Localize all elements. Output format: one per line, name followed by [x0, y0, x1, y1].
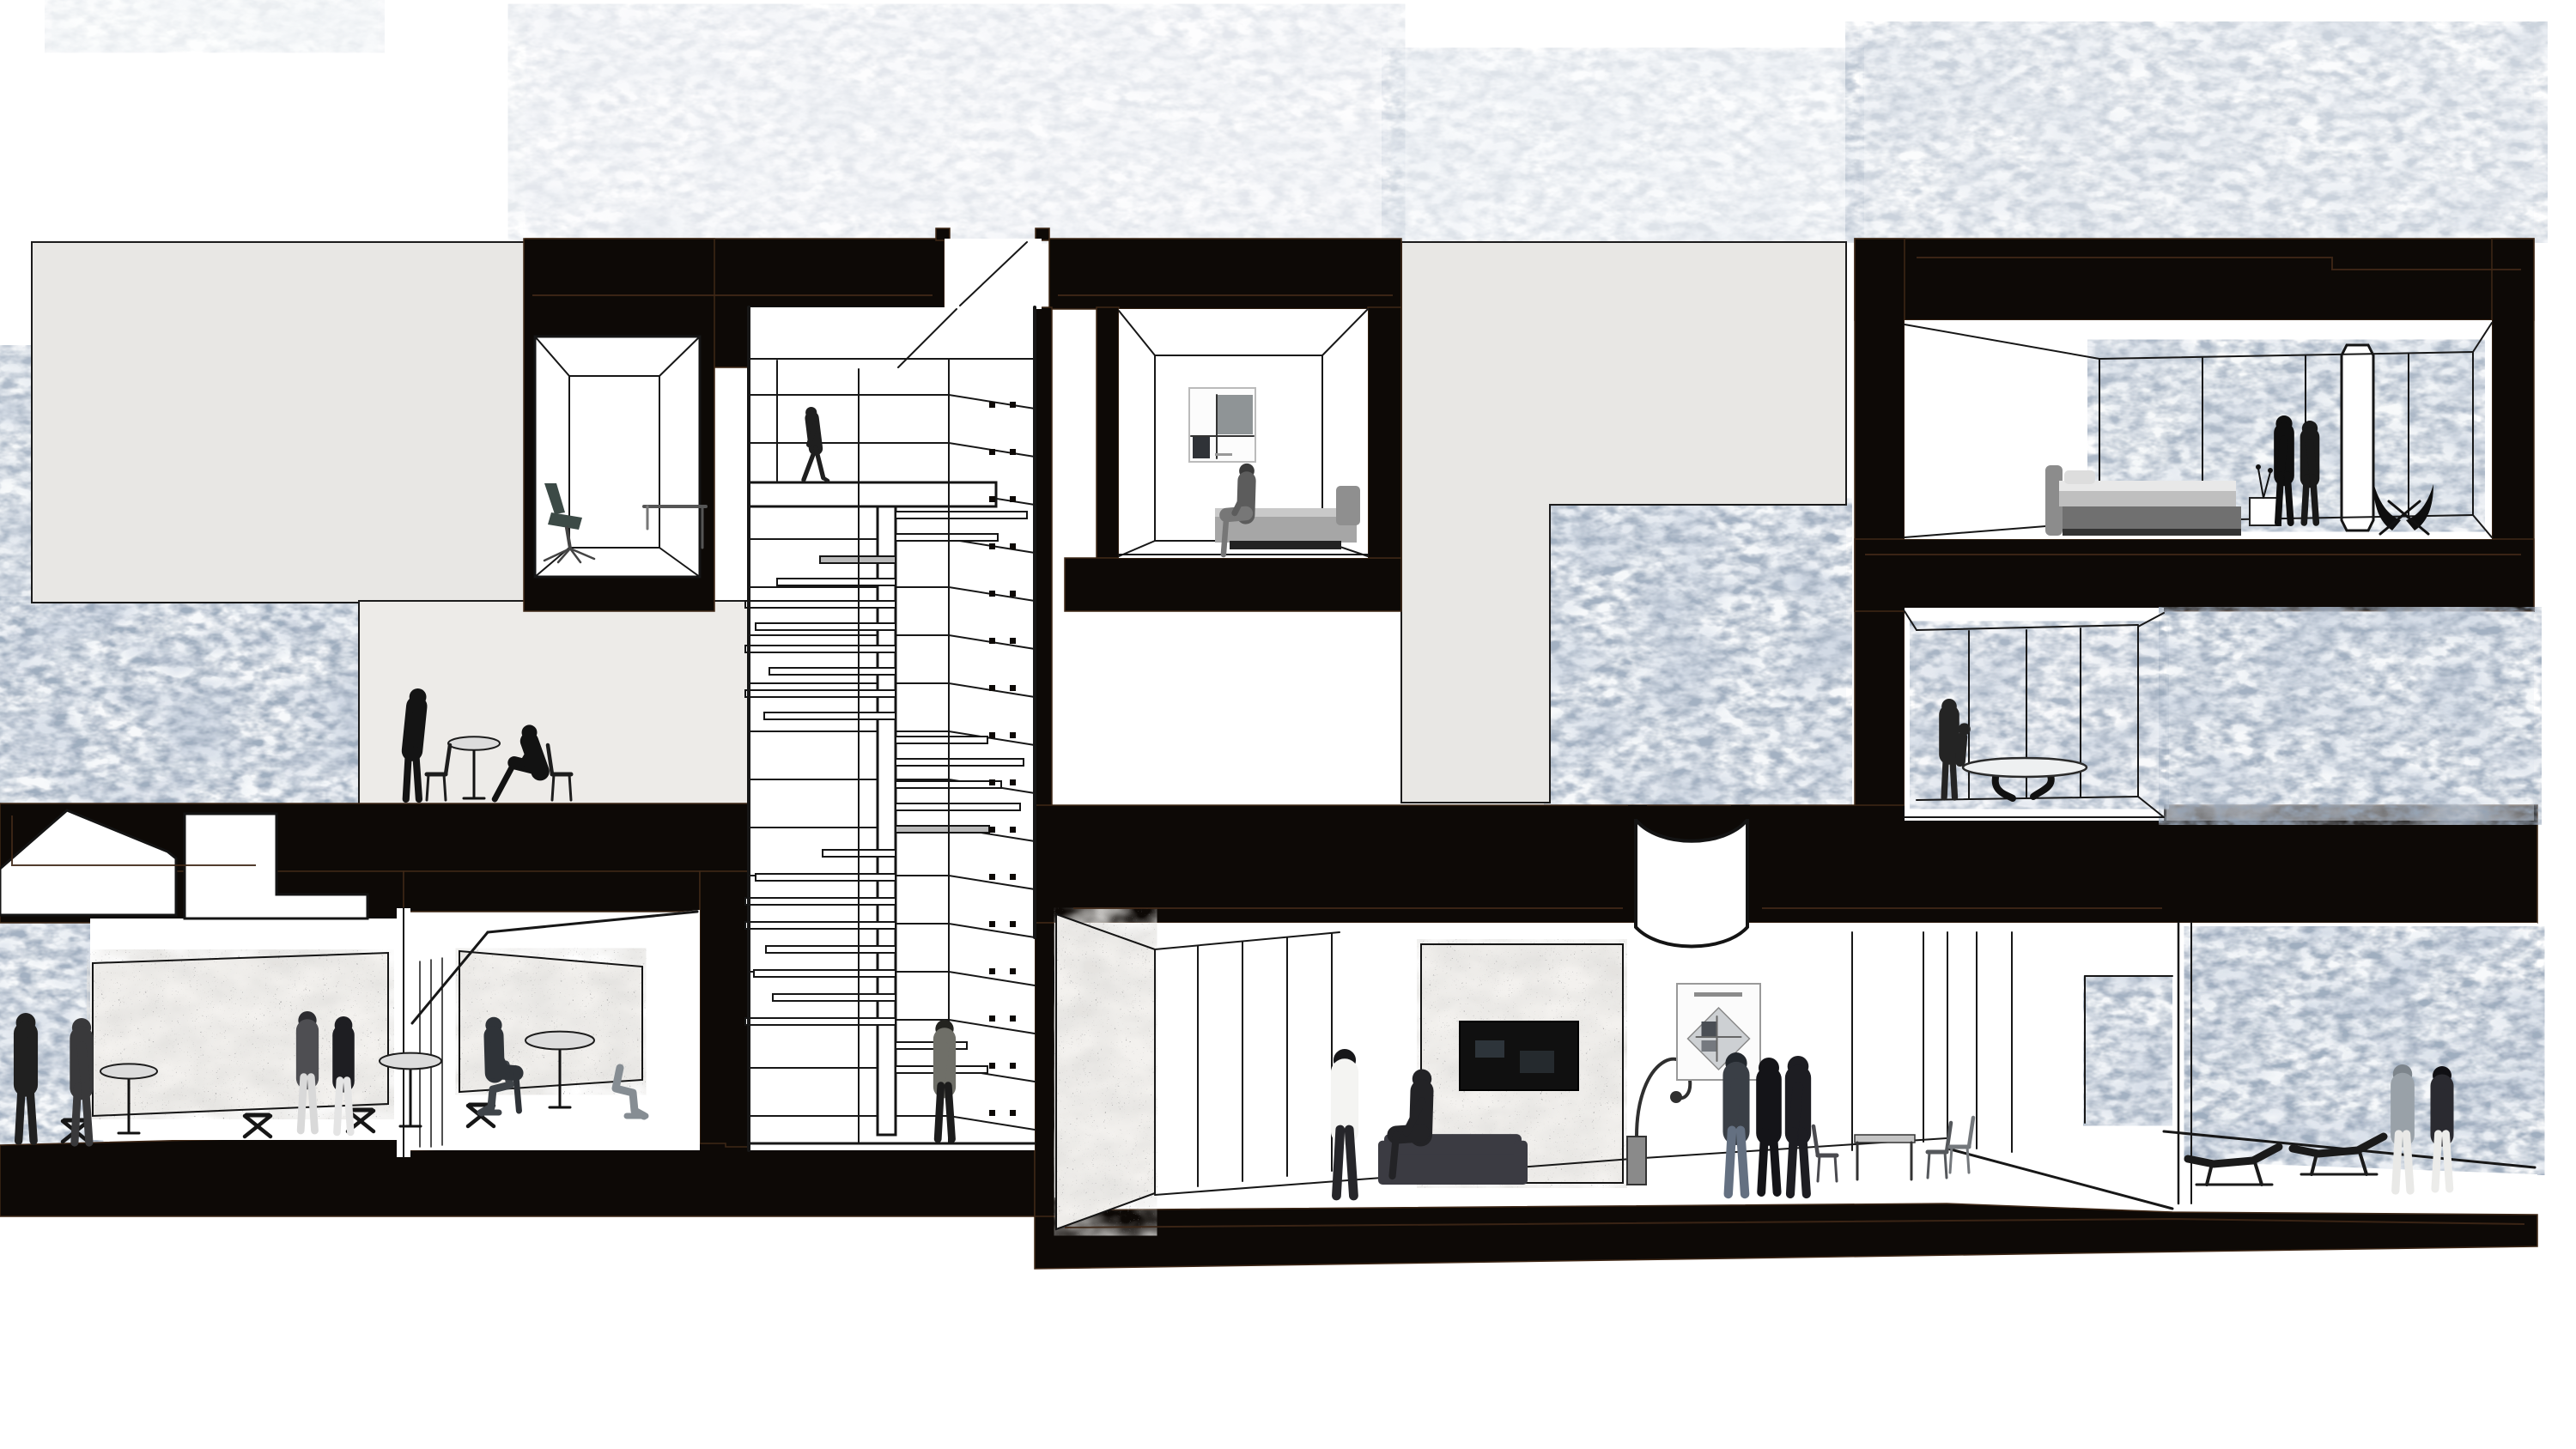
line: [1818, 1155, 1820, 1181]
line: [1950, 1147, 1952, 1173]
structure-slab: [1855, 239, 2534, 320]
stair-tread: [756, 874, 896, 881]
structure-slab: [1065, 558, 1401, 611]
stair-tread: [766, 946, 896, 953]
painting-caption: [1215, 453, 1232, 456]
structure-slab: [1097, 307, 1119, 558]
line: [940, 1046, 945, 1085]
dining-top: [1855, 1135, 1915, 1143]
line: [406, 749, 409, 799]
line: [1790, 1132, 1794, 1194]
line: [552, 774, 554, 800]
facade-dot: [989, 591, 995, 597]
facade-dot: [1010, 543, 1016, 549]
line: [2278, 475, 2281, 523]
line: [1224, 515, 1227, 555]
facade-dot: [989, 496, 995, 502]
line: [444, 774, 446, 800]
lamp-base: [1627, 1137, 1646, 1185]
structure-slab: [1855, 539, 2534, 611]
bed-shadow: [2063, 529, 2241, 536]
line: [2396, 1134, 2399, 1191]
tree-texture: [526, 9, 1388, 239]
stair-tread: [773, 994, 896, 1001]
facade-dot: [1010, 449, 1016, 455]
stair-tread: [745, 922, 896, 929]
stair-tread: [745, 898, 896, 905]
bed-backrest: [1336, 486, 1360, 525]
facade-dot: [1010, 827, 1016, 833]
structure-slab: [936, 228, 950, 240]
line: [1741, 1131, 1745, 1194]
line: [1960, 737, 1962, 761]
facade-dot: [1010, 638, 1016, 644]
poster-caption: [1694, 992, 1742, 997]
line: [427, 774, 428, 800]
facade-dot: [989, 543, 995, 549]
facade-dot: [989, 449, 995, 455]
pillow: [2064, 470, 2095, 484]
stair-tread: [777, 579, 896, 585]
tree-texture: [2085, 979, 2171, 1123]
painting-gray-square: [1217, 395, 1253, 434]
column-tab: [1731, 805, 1750, 819]
facade-dot: [989, 638, 995, 644]
line: [823, 478, 828, 481]
facade-dot: [989, 1110, 995, 1116]
line: [2435, 1134, 2439, 1189]
facade-dot: [1010, 1110, 1016, 1116]
line: [1731, 1084, 1736, 1131]
poster-block: [1702, 1040, 1717, 1052]
structure-slab: [1036, 228, 1049, 240]
table-top: [380, 1053, 441, 1070]
line: [82, 1046, 86, 1087]
line: [1967, 1147, 1969, 1173]
line: [2304, 477, 2306, 523]
line: [1928, 1152, 1929, 1178]
flower: [2268, 468, 2273, 473]
stair-tread: [754, 970, 896, 977]
column-tab: [1628, 805, 1647, 819]
architectural-section-rendering: [0, 0, 2576, 1449]
stair-tread: [896, 534, 998, 541]
line: [1340, 1082, 1345, 1130]
bed-base: [1230, 541, 1341, 549]
gray-plane: [32, 242, 526, 603]
flower: [2256, 464, 2261, 470]
stair-tread: [896, 737, 987, 743]
structure-slab: [1049, 239, 1401, 309]
facade-dot: [989, 1016, 995, 1022]
line: [2310, 444, 2313, 477]
structure-slab: [1855, 239, 1905, 821]
stair-tread: [896, 1042, 967, 1049]
stair-tread: [745, 1018, 896, 1025]
tree-texture: [1859, 26, 2534, 239]
stair-tread: [896, 512, 1027, 518]
line: [2281, 440, 2284, 475]
tree-texture: [1550, 505, 1846, 807]
line: [1728, 1131, 1732, 1194]
facade-dot: [989, 874, 995, 880]
tree-texture: [2166, 611, 2534, 821]
line: [1761, 1131, 1765, 1192]
facade-dot: [989, 779, 995, 785]
line: [948, 1086, 951, 1139]
line: [343, 1042, 348, 1080]
table-top: [448, 737, 500, 750]
line: [30, 1083, 34, 1141]
tree-texture: [1391, 52, 1855, 239]
facade-dot: [989, 1063, 995, 1069]
line: [2398, 1093, 2403, 1134]
tree-texture: [0, 350, 34, 604]
line: [1393, 1135, 1397, 1176]
line: [1336, 1130, 1340, 1196]
facade-dot: [1010, 1063, 1016, 1069]
facade-dot: [1010, 591, 1016, 597]
line: [416, 749, 419, 799]
line: [19, 1083, 22, 1141]
facade-dot: [989, 827, 995, 833]
line: [311, 1077, 314, 1131]
line: [2407, 1134, 2411, 1191]
stair-tread: [745, 690, 896, 697]
facade-dot: [989, 402, 995, 408]
white-volume: [2342, 345, 2373, 530]
facade-dot: [1010, 732, 1016, 738]
line: [1773, 1131, 1777, 1192]
stair-tread: [745, 646, 896, 652]
line: [1953, 754, 1955, 797]
line: [938, 1086, 941, 1139]
line: [1349, 1130, 1353, 1196]
line: [75, 1087, 78, 1143]
line: [2287, 475, 2291, 523]
furniture-painting: [1189, 388, 1255, 462]
structure-slab: [1035, 923, 1056, 1216]
tree-texture: [52, 0, 378, 52]
line: [1944, 754, 1946, 797]
facade-dot: [1010, 685, 1016, 691]
noguchi-top: [1963, 758, 2087, 777]
line: [2442, 1094, 2446, 1134]
poster-block: [1702, 1022, 1717, 1037]
facade-dot: [1010, 968, 1016, 974]
stair-tread: [756, 623, 896, 630]
line: [569, 774, 571, 800]
stair-tread: [896, 826, 989, 833]
stair-tread: [764, 712, 896, 719]
facade-dot: [989, 921, 995, 927]
line: [1835, 1155, 1837, 1181]
facade-dot: [1010, 921, 1016, 927]
room-volume: [535, 336, 700, 577]
painting-dark-square: [1193, 436, 1210, 458]
tv-glow: [1520, 1051, 1554, 1073]
tree-texture: [0, 601, 361, 826]
sofa-seat: [1380, 1155, 1526, 1185]
stair-tread: [896, 759, 1024, 766]
table-top: [526, 1032, 594, 1050]
line: [2313, 477, 2317, 523]
facade-dot: [1010, 402, 1016, 408]
furniture-tv: [1460, 1022, 1578, 1090]
stair-tread: [769, 668, 896, 675]
line: [1769, 1088, 1774, 1131]
facade-dot: [1010, 1016, 1016, 1022]
line: [303, 1038, 307, 1076]
bed-base: [2063, 506, 2241, 532]
furniture-poster: [1677, 984, 1760, 1080]
sofa-arm: [1514, 1141, 1528, 1185]
line: [1793, 1087, 1798, 1131]
facade-dot: [1010, 779, 1016, 785]
line: [301, 1077, 304, 1131]
line: [85, 1087, 88, 1143]
facade-dot: [1010, 874, 1016, 880]
table-top: [100, 1064, 157, 1078]
structure-slab: [1368, 307, 1401, 558]
line: [1802, 1132, 1807, 1194]
facade-dot: [1010, 496, 1016, 502]
line: [337, 1081, 339, 1132]
stone-wall-texture: [1056, 914, 1155, 1229]
line: [1945, 1152, 1947, 1178]
section-canvas: [0, 0, 2576, 1449]
structure-slab: [404, 871, 700, 912]
stair-landing: [749, 482, 996, 506]
structure-slab: [1035, 805, 2537, 923]
facade-dot: [989, 968, 995, 974]
line: [2445, 1134, 2449, 1189]
stair-tread: [896, 803, 1020, 810]
line: [347, 1081, 350, 1132]
lamp-head: [1670, 1091, 1682, 1103]
facade-dot: [989, 732, 995, 738]
facade-dot: [989, 685, 995, 691]
tv-glow: [1475, 1040, 1504, 1058]
tree-texture: [2191, 931, 2537, 1170]
line: [21, 1041, 26, 1083]
stair-tread: [745, 601, 896, 608]
line: [516, 1073, 519, 1111]
